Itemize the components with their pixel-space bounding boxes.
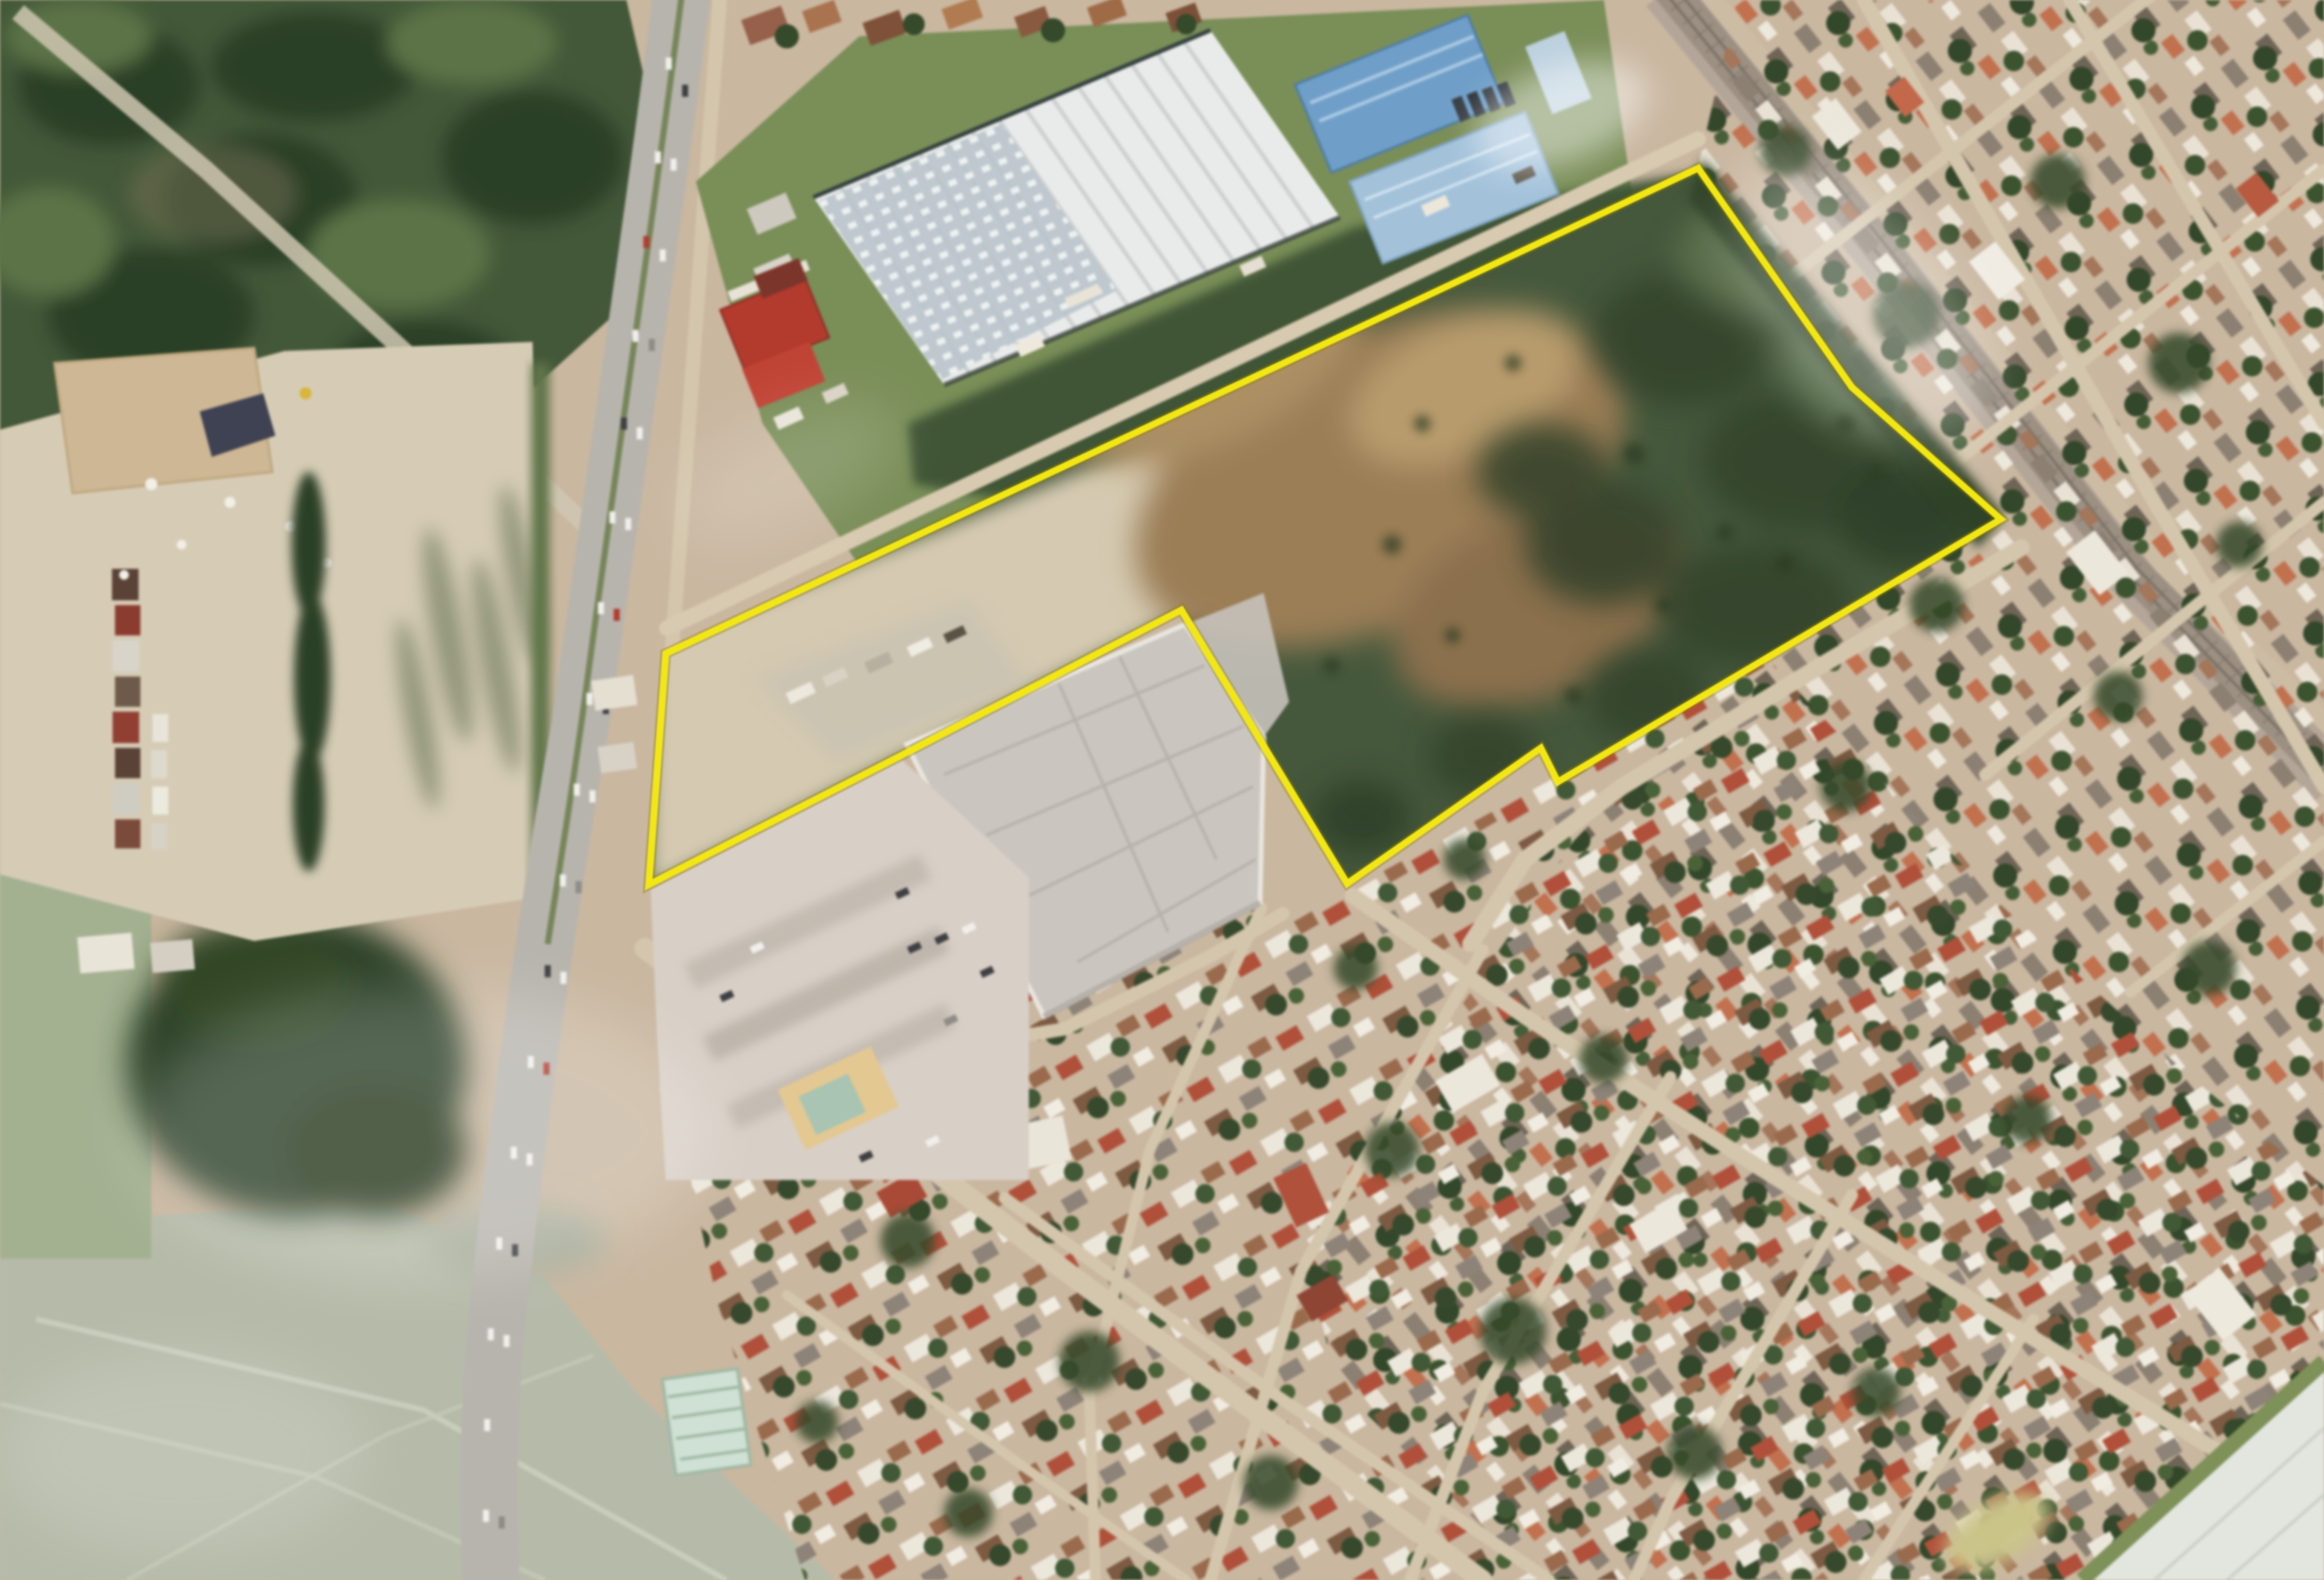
aerial-imagery: [0, 0, 2324, 1580]
satellite-map-view[interactable]: [0, 0, 2324, 1580]
satellite-scene: [0, 0, 2324, 1580]
construction-yard: [0, 342, 550, 941]
